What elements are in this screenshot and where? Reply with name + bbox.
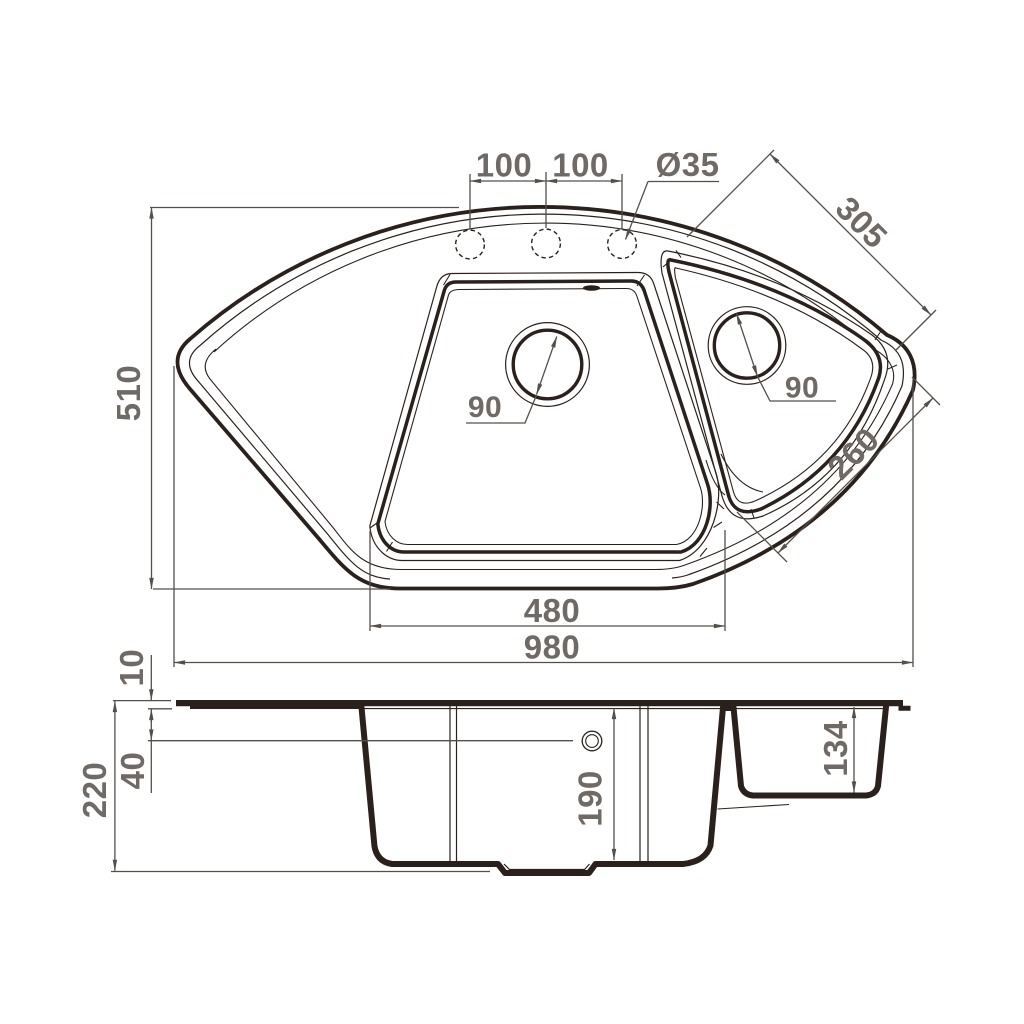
svg-text:10: 10	[113, 649, 150, 687]
svg-text:134: 134	[817, 720, 854, 777]
svg-text:980: 980	[524, 629, 581, 666]
svg-text:220: 220	[76, 762, 113, 819]
svg-text:190: 190	[572, 770, 609, 827]
svg-text:510: 510	[110, 365, 147, 422]
svg-text:100: 100	[552, 147, 609, 184]
svg-text:40: 40	[114, 752, 151, 790]
svg-text:90: 90	[785, 372, 819, 405]
svg-text:480: 480	[524, 592, 581, 629]
svg-text:100: 100	[476, 147, 533, 184]
svg-text:90: 90	[468, 391, 502, 424]
svg-text:Ø35: Ø35	[656, 146, 720, 183]
